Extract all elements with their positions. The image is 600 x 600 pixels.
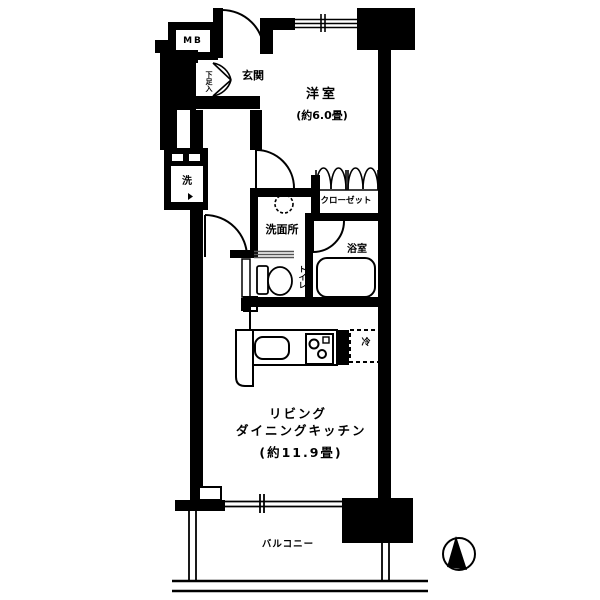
toilet-fixture bbox=[257, 266, 292, 295]
balcony-rails bbox=[172, 511, 428, 591]
meter-box-label: MB bbox=[176, 31, 210, 51]
stove-panel bbox=[323, 337, 329, 343]
toilet-door bbox=[242, 259, 250, 297]
balcony-window bbox=[225, 494, 342, 513]
western-room-door bbox=[256, 150, 294, 188]
shoe-cabinet-label: 下足入 bbox=[197, 63, 212, 99]
kitchen-counter bbox=[236, 330, 337, 386]
western-room-size-label: (約6.0畳) bbox=[284, 110, 360, 123]
ldk-label-line1: リビング bbox=[256, 407, 340, 421]
wash-basin bbox=[275, 195, 293, 213]
floorplan-canvas: MB 玄関 下足入 洋室 (約6.0畳) クローゼット 洗面所 洗 浴室 トイレ… bbox=[0, 0, 600, 600]
entry-door-arc bbox=[222, 10, 264, 52]
bathroom-label: 浴室 bbox=[339, 244, 375, 256]
washroom-label: 洗面所 bbox=[254, 224, 310, 237]
stove-burner-2 bbox=[318, 350, 326, 358]
refrigerator-label: 冷 bbox=[357, 338, 375, 348]
kitchen-sink bbox=[255, 337, 289, 359]
stove-burner-1 bbox=[310, 340, 319, 349]
top-window bbox=[295, 14, 357, 32]
washroom-sliding-door bbox=[254, 252, 294, 258]
hallway-door bbox=[205, 215, 247, 257]
bathtub bbox=[317, 258, 375, 297]
entrance-label: 玄関 bbox=[228, 70, 278, 83]
western-room-label: 洋室 bbox=[290, 88, 354, 103]
closet-bifold-doors bbox=[311, 168, 378, 190]
ldk-label-line2: ダイニングキッチン bbox=[236, 424, 360, 438]
balcony-label: バルコニー bbox=[260, 540, 316, 551]
closet-label: クローゼット bbox=[314, 197, 378, 207]
laundry-arrow bbox=[188, 193, 193, 200]
toilet-label: トイレ bbox=[294, 258, 306, 296]
north-compass-icon bbox=[443, 536, 475, 570]
toilet-door-post bbox=[241, 298, 251, 311]
laundry-label: 洗 bbox=[177, 176, 197, 188]
ldk-size-label: (約11.9畳) bbox=[256, 446, 346, 460]
